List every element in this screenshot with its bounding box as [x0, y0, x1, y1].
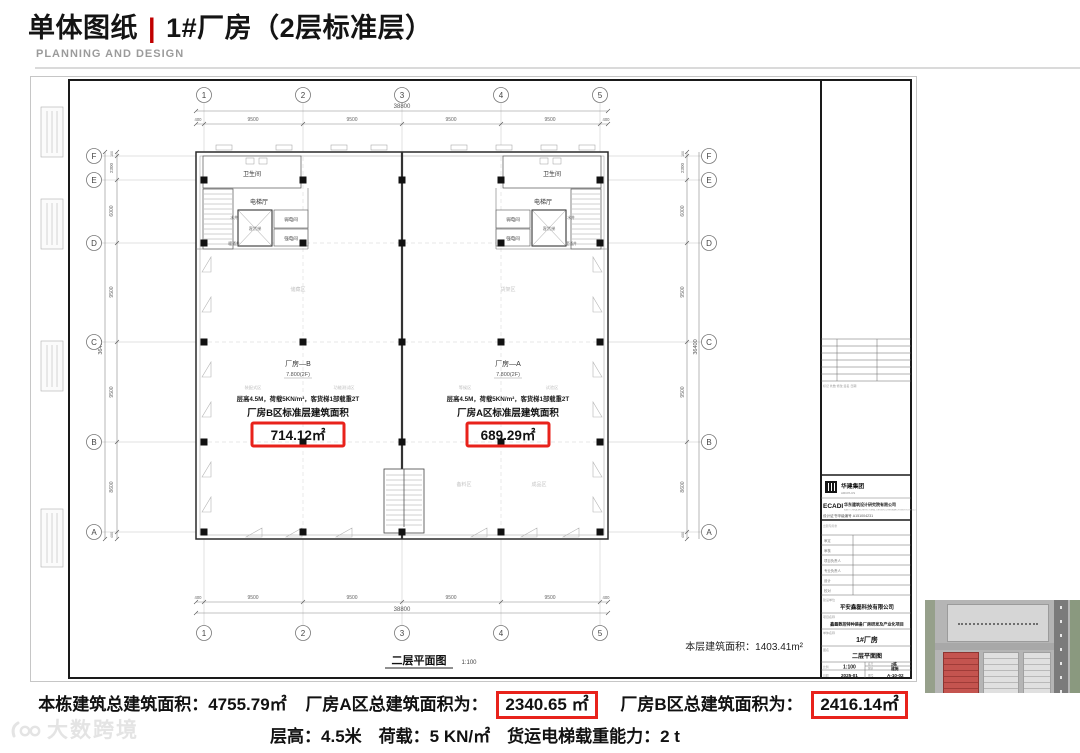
- sheet-no-value: A-10-02: [887, 673, 904, 678]
- svg-text:设计: 设计: [824, 578, 831, 583]
- client-label: 建设单位: [823, 597, 835, 602]
- floor-plan-svg: 38800 400 9500 9500 9500 9500 400 400 95…: [31, 77, 916, 681]
- drawing-sheet: 38800 400 9500 9500 9500 9500 400 400 95…: [30, 76, 917, 682]
- svg-text:9500: 9500: [445, 595, 456, 601]
- svg-text:成品区: 成品区: [531, 481, 546, 488]
- title-right: 1#厂房（2层标准层）: [166, 13, 433, 43]
- zone-b-area-label: 厂房B区标准层建筑面积: [247, 407, 349, 419]
- svg-text:A: A: [706, 528, 712, 537]
- svg-text:9500: 9500: [109, 286, 115, 297]
- svg-text:5: 5: [598, 629, 603, 638]
- stage-label: 图别: [868, 667, 874, 671]
- svg-text:400: 400: [603, 117, 611, 122]
- footer-totals: 本栋建筑总建筑面积：4755.79㎡ 厂房A区总建筑面积为： 2340.65 ㎡…: [0, 690, 950, 719]
- site-road-horizontal: [935, 643, 1054, 650]
- svg-text:水井: 水井: [230, 215, 238, 220]
- zone-b-tag-right: 功能测试区: [334, 384, 355, 391]
- svg-text:备料区: 备料区: [456, 481, 471, 488]
- project-label: 项目名称: [823, 614, 835, 619]
- building-label: 单体名称: [823, 630, 835, 635]
- svg-text:400: 400: [681, 532, 685, 538]
- svg-text:强电间: 强电间: [284, 235, 298, 242]
- svg-text:1: 1: [202, 629, 207, 638]
- svg-text:38800: 38800: [394, 607, 411, 613]
- title-block: 标记 处数 修改 签名 日期 华建集团 ARCPLUS ECADI 华东建筑设计…: [821, 339, 916, 678]
- zone-b-level: 7.800(2F): [286, 372, 310, 378]
- titleblock-table-note: 标记 处数 修改 签名 日期: [823, 383, 856, 388]
- page-title: 单体图纸|1#厂房（2层标准层）: [28, 6, 433, 45]
- site-big-building: [947, 604, 1049, 642]
- ecadi-logo-text: ECADI: [823, 503, 843, 510]
- dim-labels-right: 100 2300 6000 9500 9500 8600 400 36400: [680, 151, 699, 538]
- zone-b-total-value: 2416.14㎡: [811, 691, 907, 719]
- svg-text:400: 400: [195, 117, 203, 122]
- group-logo-sub: ARCPLUS: [841, 491, 855, 495]
- zone-a-area-label: 厂房A区标准层建筑面积: [457, 407, 559, 419]
- title-separator: |: [148, 13, 156, 43]
- design-company: 华东建筑设计研究院有限公司: [844, 501, 896, 507]
- svg-text:水井: 水井: [567, 215, 575, 220]
- project-name: 鑫磊数控特种装备厂房研发及产业化项目: [829, 621, 904, 627]
- svg-text:2: 2: [301, 91, 306, 100]
- svg-text:100: 100: [110, 151, 114, 157]
- block-value: 2栋: [891, 662, 897, 667]
- page-header: 单体图纸|1#厂房（2层标准层） PLANNING AND DESIGN: [28, 6, 433, 60]
- svg-text:F: F: [92, 152, 97, 161]
- zone-b-name: 厂房—B: [285, 359, 311, 368]
- page-subtitle: PLANNING AND DESIGN: [36, 48, 433, 60]
- stamp-note: 出图专用章: [823, 524, 837, 528]
- site-plan-thumbnail: [925, 600, 1080, 693]
- svg-text:暖通井: 暖通井: [228, 241, 240, 246]
- svg-text:6000: 6000: [109, 205, 115, 216]
- svg-text:400: 400: [195, 595, 203, 600]
- svg-text:E: E: [706, 176, 711, 185]
- design-cert: 设计证书甲级编号 A151004231: [823, 513, 873, 518]
- svg-text:C: C: [91, 338, 97, 347]
- floor-area-note: 本层建筑面积：1403.41m²: [685, 640, 803, 653]
- svg-text:9500: 9500: [346, 595, 357, 601]
- svg-text:4: 4: [499, 91, 504, 100]
- svg-text:B: B: [91, 438, 96, 447]
- svg-text:9500: 9500: [544, 117, 555, 123]
- svg-text:弱电间: 弱电间: [506, 216, 520, 223]
- zone-b-area-value: 714.12㎡: [271, 427, 326, 443]
- zone-a-tag-right: 试验区: [546, 384, 559, 391]
- svg-text:400: 400: [603, 595, 611, 600]
- svg-text:2: 2: [301, 629, 306, 638]
- svg-text:9500: 9500: [109, 386, 115, 397]
- zone-b-spec: 层高4.5M，荷载5KN/m²，客货梯1部载重2T: [237, 394, 360, 403]
- svg-text:B: B: [706, 438, 711, 447]
- svg-text:D: D: [706, 239, 712, 248]
- svg-text:100: 100: [681, 151, 685, 157]
- svg-text:2300: 2300: [680, 162, 685, 173]
- zone-a-tag-left: 等候区: [459, 384, 472, 391]
- scale-label: 比例: [823, 665, 829, 669]
- date-value: 2025-01: [841, 673, 858, 678]
- site-road-vertical: [1054, 600, 1068, 693]
- svg-text:A: A: [91, 528, 97, 537]
- svg-text:2300: 2300: [109, 162, 114, 173]
- site-green-left: [925, 600, 935, 693]
- zone-a-level: 7.800(2F): [496, 372, 520, 378]
- svg-text:F: F: [707, 152, 712, 161]
- zone-a-name: 厂房—A: [495, 359, 521, 368]
- site-building-2: [983, 652, 1019, 693]
- svg-text:1: 1: [202, 91, 207, 100]
- svg-text:3: 3: [400, 629, 405, 638]
- svg-text:9500: 9500: [445, 117, 456, 123]
- building-name: 1#厂房: [856, 635, 878, 644]
- stair-bottom: [384, 469, 424, 533]
- stage-value: 建施: [890, 666, 899, 671]
- svg-text:项目负责人: 项目负责人: [824, 558, 842, 563]
- plan-caption: 二层平面图: [392, 654, 447, 667]
- scale-value: 1:100: [843, 665, 856, 671]
- svg-text:3: 3: [400, 91, 405, 100]
- svg-text:6000: 6000: [680, 205, 686, 216]
- sheet-no-label: 图号: [868, 674, 874, 678]
- svg-text:审定: 审定: [824, 538, 831, 543]
- svg-text:9500: 9500: [247, 595, 258, 601]
- design-company-en: EAST CHINA ARCHITECTURAL DESIGN & RESEAR…: [844, 509, 916, 512]
- svg-text:储藏区: 储藏区: [290, 286, 305, 293]
- drawing-label: 图名: [823, 647, 829, 652]
- block-label: 栋号: [868, 662, 874, 666]
- svg-text:9500: 9500: [544, 595, 555, 601]
- svg-text:9500: 9500: [346, 117, 357, 123]
- svg-text:400: 400: [110, 532, 114, 538]
- svg-text:8600: 8600: [680, 481, 686, 492]
- site-highlighted-building: [943, 652, 979, 693]
- svg-text:电梯厅: 电梯厅: [534, 198, 552, 206]
- footer-specs: 层高：4.5米 荷载：5 KN/㎡ 货运电梯载重能力：2 t: [0, 722, 950, 747]
- site-green-right: [1070, 600, 1080, 693]
- svg-text:卫生间: 卫生间: [543, 170, 561, 178]
- svg-text:强电间: 强电间: [506, 235, 520, 242]
- svg-text:客货梯: 客货梯: [249, 225, 262, 232]
- group-logo-text: 华建集团: [841, 482, 864, 490]
- svg-text:客货梯: 客货梯: [543, 225, 556, 232]
- svg-text:弱电间: 弱电间: [284, 216, 298, 223]
- drawing-name: 二层平面图: [852, 652, 882, 660]
- svg-text:C: C: [706, 338, 712, 347]
- svg-text:9500: 9500: [680, 386, 686, 397]
- svg-text:卫生间: 卫生间: [243, 170, 261, 178]
- svg-text:9500: 9500: [680, 286, 686, 297]
- svg-text:电梯厅: 电梯厅: [250, 198, 268, 206]
- svg-text:审核: 审核: [824, 548, 831, 553]
- svg-text:9500: 9500: [247, 117, 258, 123]
- watermark-text: 大数跨境: [47, 714, 139, 744]
- header-divider: [35, 67, 1080, 69]
- watermark-logo-icon: [8, 718, 42, 740]
- zone-b-tag-left: 装配式区: [245, 384, 262, 391]
- svg-text:校对: 校对: [824, 588, 831, 593]
- zone-a-area-value: 689.29㎡: [481, 427, 536, 443]
- zone-b-total-label: 厂房B区总建筑面积为：: [620, 695, 802, 714]
- date-label: 日期: [823, 674, 829, 678]
- svg-text:36400: 36400: [693, 339, 699, 354]
- client-name: 平安鑫磊科技有限公司: [840, 603, 894, 611]
- plan-caption-scale: 1:100: [461, 660, 477, 666]
- zone-a-spec: 层高4.5M，荷载5KN/m²，客货梯1部载重2T: [447, 394, 570, 403]
- dim-total-top: 38800: [394, 104, 411, 110]
- site-building-3: [1023, 652, 1051, 693]
- svg-text:D: D: [91, 239, 97, 248]
- total-area-text: 本栋建筑总建筑面积：4755.79㎡: [38, 695, 286, 714]
- svg-text:E: E: [91, 176, 96, 185]
- title-left: 单体图纸: [28, 13, 138, 43]
- zone-a-total-value: 2340.65 ㎡: [496, 691, 597, 719]
- svg-text:8600: 8600: [109, 481, 115, 492]
- svg-text:5: 5: [598, 91, 603, 100]
- zone-a-total-label: 厂房A区总建筑面积为：: [305, 695, 487, 714]
- svg-text:4: 4: [499, 629, 504, 638]
- svg-text:暖通井: 暖通井: [565, 241, 577, 246]
- binding-strip: [41, 107, 63, 567]
- svg-text:货架区: 货架区: [500, 286, 515, 293]
- watermark: 大数跨境: [8, 714, 139, 744]
- svg-text:专业负责人: 专业负责人: [824, 568, 842, 573]
